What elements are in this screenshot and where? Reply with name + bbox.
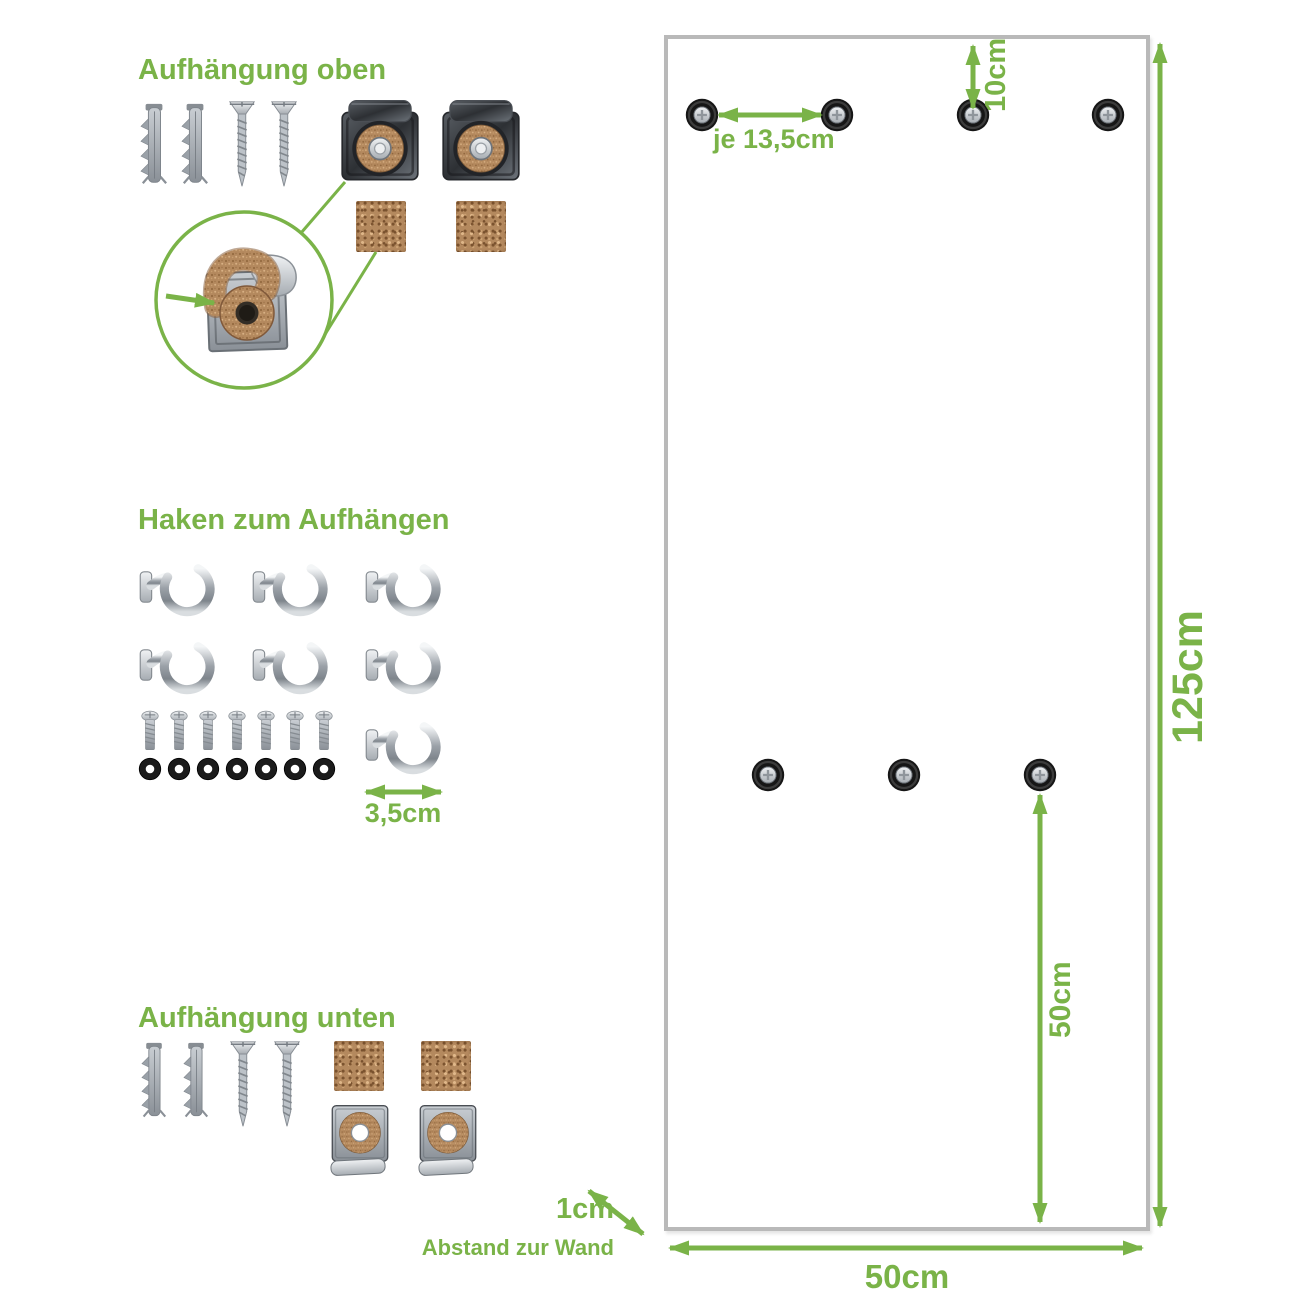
washer-icon — [196, 757, 220, 781]
washer-icon — [138, 757, 162, 781]
mounting-hole-icon — [1022, 757, 1058, 793]
wall-plug-icon — [183, 1041, 209, 1121]
screw-icon — [269, 99, 299, 191]
bolt-icon — [198, 710, 218, 752]
cork-pad-icon — [421, 1041, 471, 1091]
wall-plug-icon — [141, 1041, 167, 1121]
dim-label-top-offset: 10cm — [982, 38, 1011, 112]
hook-icon — [360, 630, 444, 700]
screw-icon — [228, 1039, 258, 1131]
hook-icon — [247, 630, 331, 700]
dim-label-wall-distance: 1cm — [444, 1193, 614, 1226]
hook-bolts-row — [140, 710, 334, 752]
wall-plug-icon — [181, 102, 209, 188]
mounting-instructions-canvas: Aufhängung oben Haken zum Aufhängen 3,5c… — [0, 0, 1300, 1300]
section-title-hanging-top: Aufhängung oben — [138, 54, 386, 87]
section-title-hooks: Haken zum Aufhängen — [138, 504, 450, 537]
hook-washers-row — [138, 757, 336, 781]
bottom-mount-screws — [228, 1039, 302, 1131]
magnifier-circle — [156, 212, 332, 388]
top-mount-glass-clips — [338, 99, 523, 183]
bolt-icon — [314, 710, 334, 752]
clip-detail-magnifier — [156, 212, 332, 388]
wall-plug-icon — [140, 102, 168, 188]
cork-pad-icon — [456, 201, 506, 252]
washer-icon — [225, 757, 249, 781]
mounting-hole-icon — [750, 757, 786, 793]
bolt-icon — [285, 710, 305, 752]
panel-holes-middle-row — [750, 757, 1058, 793]
dim-label-hole-to-bottom: 50cm — [1046, 961, 1076, 1038]
hook-icon — [360, 710, 444, 780]
glass-panel-outline — [664, 35, 1150, 1231]
screw-icon — [227, 99, 257, 191]
bolt-icon — [227, 710, 247, 752]
glass-clip-bottom-icon — [415, 1100, 481, 1180]
dim-label-wall-distance-caption: Abstand zur Wand — [389, 1235, 614, 1261]
dim-label-hook-size: 3,5cm — [353, 798, 453, 829]
dim-label-hole-spacing: je 13,5cm — [713, 124, 835, 155]
washer-icon — [167, 757, 191, 781]
hook-icon — [134, 630, 218, 700]
bolt-icon — [169, 710, 189, 752]
hooks-row-1 — [134, 552, 448, 622]
hook-icon — [134, 552, 218, 622]
dim-label-panel-width: 50cm — [807, 1258, 1007, 1296]
top-mount-wall-plugs — [140, 102, 209, 188]
section-title-hanging-bottom: Aufhängung unten — [138, 1002, 396, 1035]
hook-icon — [247, 552, 331, 622]
washer-icon — [283, 757, 307, 781]
mounting-hole-icon — [886, 757, 922, 793]
mounting-hole-icon — [1090, 97, 1126, 133]
bolt-icon — [256, 710, 276, 752]
bottom-mount-glass-clips — [327, 1100, 481, 1180]
cork-pad-icon — [356, 201, 406, 252]
screw-icon — [272, 1039, 302, 1131]
glass-clip-top-icon — [439, 99, 523, 183]
magnifier-pointer-arrow — [166, 296, 214, 303]
hooks-row-3 — [360, 710, 674, 780]
dim-label-panel-height: 125cm — [1167, 610, 1210, 744]
glass-clip-top-icon — [338, 99, 422, 183]
bottom-mount-cork-pads — [334, 1041, 471, 1091]
bottom-mount-wall-plugs — [141, 1041, 209, 1121]
cork-pad-icon — [334, 1041, 384, 1091]
bolt-icon — [140, 710, 160, 752]
hooks-row-2 — [134, 630, 448, 700]
hook-icon — [360, 552, 444, 622]
top-mount-screws — [227, 99, 299, 191]
top-mount-cork-pads — [356, 201, 506, 252]
clip-detail-illustration — [207, 255, 296, 351]
washer-icon — [254, 757, 278, 781]
glass-clip-bottom-icon — [327, 1100, 393, 1180]
washer-icon — [312, 757, 336, 781]
